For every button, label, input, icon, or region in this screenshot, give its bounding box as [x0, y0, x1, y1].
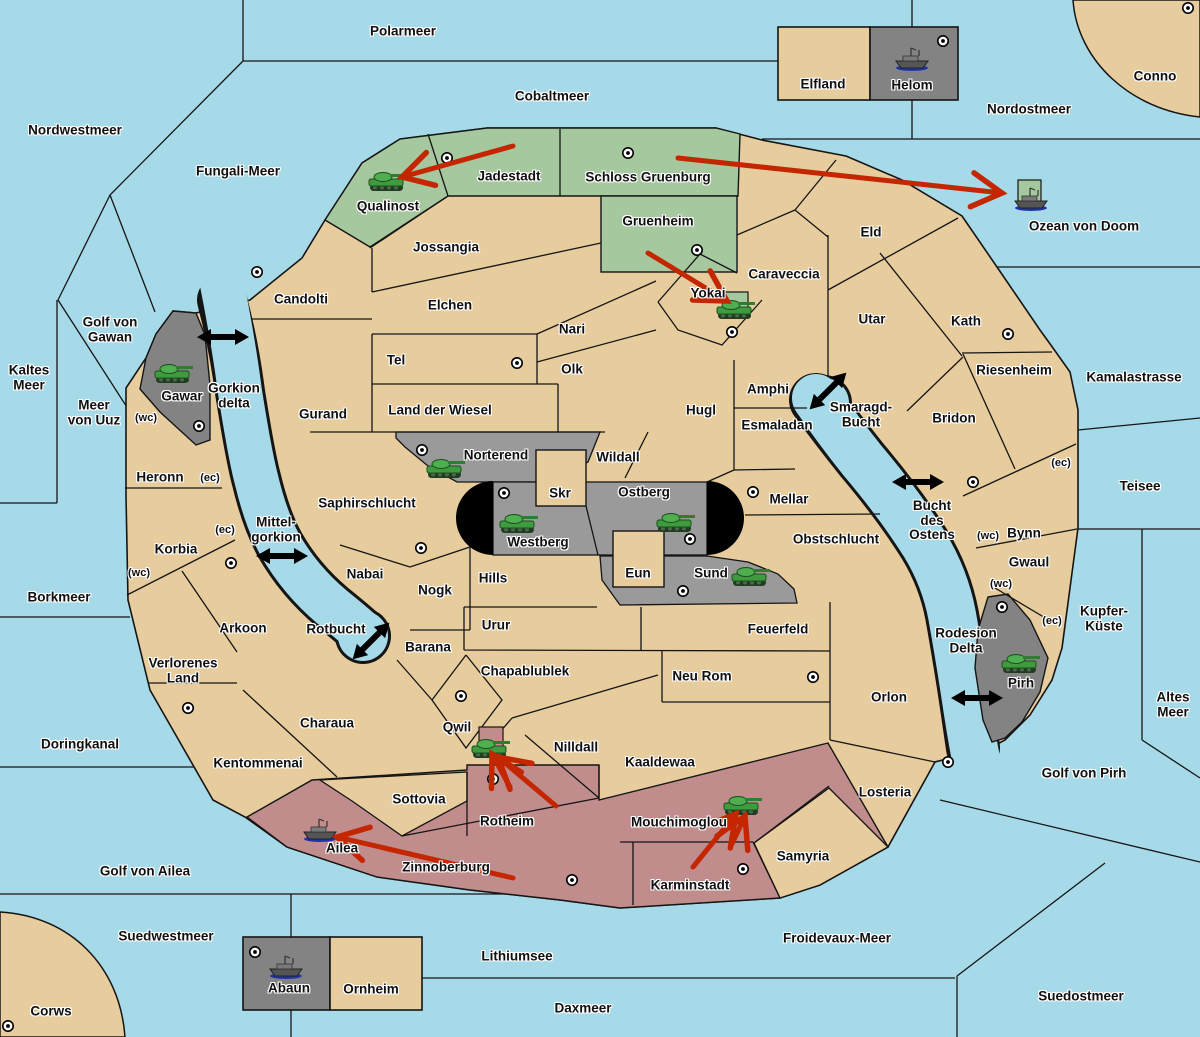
city-marker: [417, 445, 427, 455]
city-marker: [938, 36, 948, 46]
city-marker: [997, 602, 1007, 612]
region-skr[interactable]: [536, 450, 586, 506]
city-marker: [499, 488, 509, 498]
city-marker: [623, 148, 633, 158]
city-marker: [456, 691, 466, 701]
city-marker: [1183, 3, 1193, 13]
city-marker: [748, 487, 758, 497]
tank-unit-norterend[interactable]: [427, 460, 465, 479]
city-marker: [678, 586, 688, 596]
tank-unit-westberg[interactable]: [500, 515, 538, 534]
tank-unit-ostberg[interactable]: [657, 514, 695, 533]
city-marker: [3, 1021, 13, 1031]
city-marker: [692, 245, 702, 255]
city-marker: [968, 477, 978, 487]
city-marker: [738, 864, 748, 874]
city-marker: [194, 421, 204, 431]
city-marker: [226, 558, 236, 568]
city-marker: [685, 534, 695, 544]
region-ornheim-box[interactable]: [330, 937, 422, 1010]
region-gruenheim[interactable]: [601, 196, 737, 272]
map-canvas: [0, 0, 1200, 1037]
city-marker: [943, 757, 953, 767]
city-marker: [183, 703, 193, 713]
tank-unit-mouchimoglou[interactable]: [724, 797, 762, 816]
city-marker: [808, 672, 818, 682]
city-marker: [252, 267, 262, 277]
city-marker: [488, 774, 498, 784]
tank-unit-yokai[interactable]: [717, 301, 755, 320]
city-marker: [250, 947, 260, 957]
wargame-map: PolarmeerCobaltmeerNordwestmeerFungali-M…: [0, 0, 1200, 1037]
region-eun[interactable]: [613, 531, 664, 587]
city-marker: [727, 327, 737, 337]
tank-unit-gawar[interactable]: [155, 365, 193, 384]
city-marker: [416, 543, 426, 553]
region-elfland-box[interactable]: [778, 27, 870, 100]
tank-unit-pirh[interactable]: [1002, 655, 1040, 674]
tank-unit-sund[interactable]: [732, 568, 770, 587]
city-marker: [567, 875, 577, 885]
city-marker: [1003, 329, 1013, 339]
city-marker: [512, 358, 522, 368]
